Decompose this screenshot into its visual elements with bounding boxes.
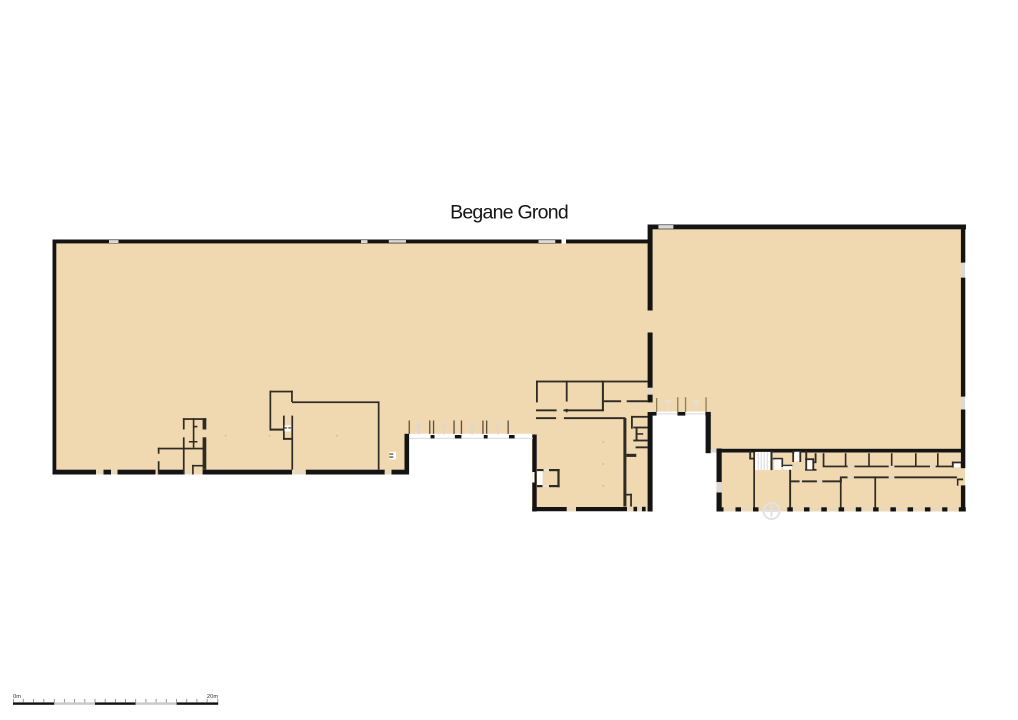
svg-text:Begane Grond: Begane Grond bbox=[450, 202, 568, 224]
svg-text:20m: 20m bbox=[207, 694, 218, 700]
svg-text:0m: 0m bbox=[13, 694, 21, 700]
